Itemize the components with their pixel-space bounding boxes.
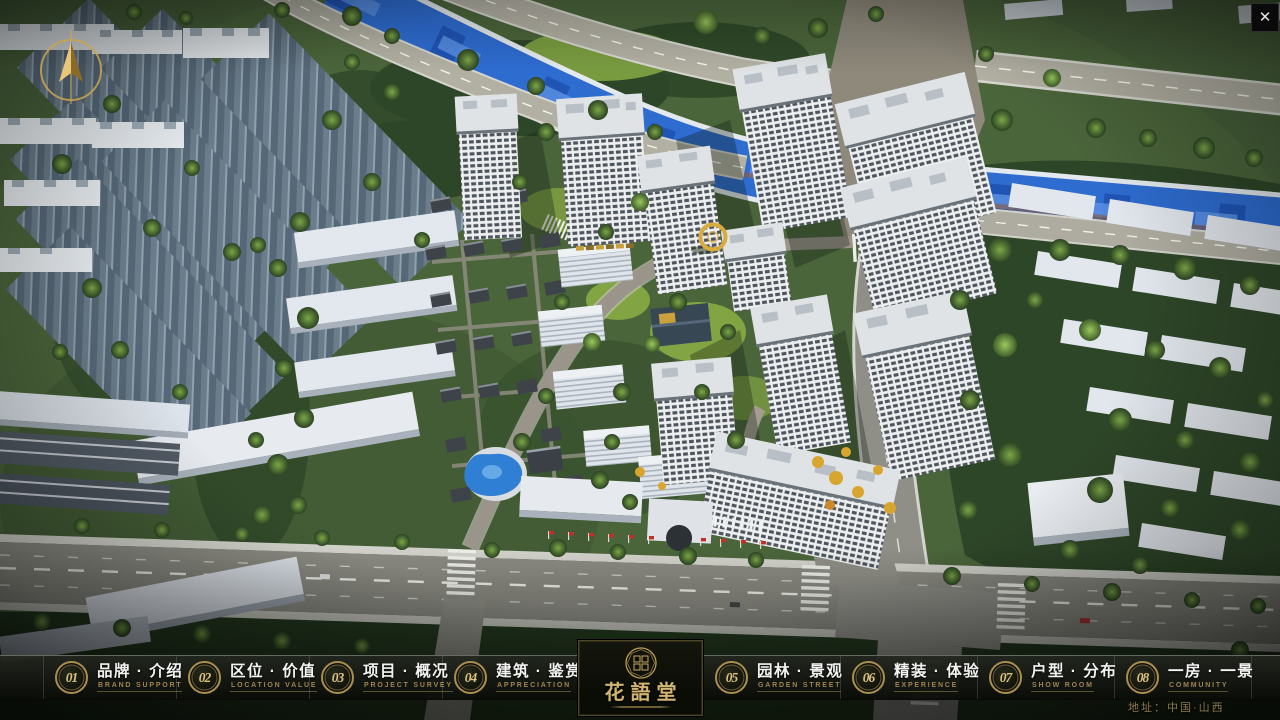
menu-item-label-en: SHOW ROOM: [1031, 681, 1094, 692]
menu-item-label-zh: 区位 · 价值: [230, 663, 309, 680]
menu-item-location-value[interactable]: 02 区位 · 价值LOCATION VALUE: [176, 656, 309, 699]
menu-item-label-en: APPRECIATION: [496, 681, 571, 692]
aerial-map[interactable]: [0, 0, 1280, 720]
menu-item-label-zh: 一房 · 一景: [1168, 663, 1251, 680]
close-button[interactable]: ✕: [1251, 3, 1279, 32]
menu-item-label-en: PROJECT SURVEY: [363, 681, 453, 692]
menu-item-number-badge: 04: [454, 661, 487, 694]
menu-item-label-zh: 园林 · 景观: [757, 663, 840, 680]
menu-item-label-zh: 户型 · 分布: [1031, 663, 1114, 680]
menu-item-number-badge: 03: [321, 661, 354, 694]
menu-item-label-en: BRAND SUPPORT: [97, 681, 182, 692]
menu-item-number-badge: 07: [989, 661, 1022, 694]
menu-item-interior-experience[interactable]: 06 精装 · 体验EXPERIENCE: [840, 656, 977, 699]
menu-item-number-badge: 06: [852, 661, 885, 694]
menu-item-label-zh: 精装 · 体验: [894, 663, 977, 680]
menu-item-project-overview[interactable]: 03 项目 · 概况PROJECT SURVEY: [309, 656, 442, 699]
menu-item-label-en: LOCATION VALUE: [230, 681, 317, 692]
brand-seal-icon: [624, 646, 658, 680]
menu-item-number-badge: 01: [55, 661, 88, 694]
menu-item-label-en: GARDEN STREET: [757, 681, 841, 692]
logo-panel[interactable]: 花語堂: [578, 640, 703, 716]
menu-item-room-view[interactable]: 08 一房 · 一景COMMUNITY: [1114, 656, 1251, 699]
menu-item-number-badge: 02: [188, 661, 221, 694]
menu-item-number-badge: 08: [1126, 661, 1159, 694]
close-icon: ✕: [1259, 9, 1272, 26]
menu-item-architecture[interactable]: 04 建筑 · 鉴赏APPRECIATION: [442, 656, 578, 699]
menu-item-label-zh: 建筑 · 鉴赏: [496, 663, 578, 680]
compass-icon: [28, 26, 114, 122]
menu-item-label-en: COMMUNITY: [1168, 681, 1228, 692]
presentation-window: ✕ 01 品牌 · 介绍BRAND SUPPORT 02 区位 · 价值LOCA…: [0, 0, 1280, 720]
menu-item-landscape[interactable]: 05 园林 · 景观GARDEN STREET: [703, 656, 840, 699]
brand-tagline-line: [610, 706, 672, 708]
menu-item-label-en: EXPERIENCE: [894, 681, 958, 692]
menu-item-label-zh: 品牌 · 介绍: [97, 663, 176, 680]
menu-item-brand-intro[interactable]: 01 品牌 · 介绍BRAND SUPPORT: [43, 656, 176, 699]
menu-item-label-zh: 项目 · 概况: [363, 663, 442, 680]
brand-name: 花語堂: [599, 682, 683, 704]
menu-divider: [1251, 656, 1252, 699]
menu-item-floorplan-distribution[interactable]: 07 户型 · 分布SHOW ROOM: [977, 656, 1114, 699]
address-text: 地址：中国·山西: [1128, 699, 1278, 715]
menu-item-number-badge: 05: [715, 661, 748, 694]
